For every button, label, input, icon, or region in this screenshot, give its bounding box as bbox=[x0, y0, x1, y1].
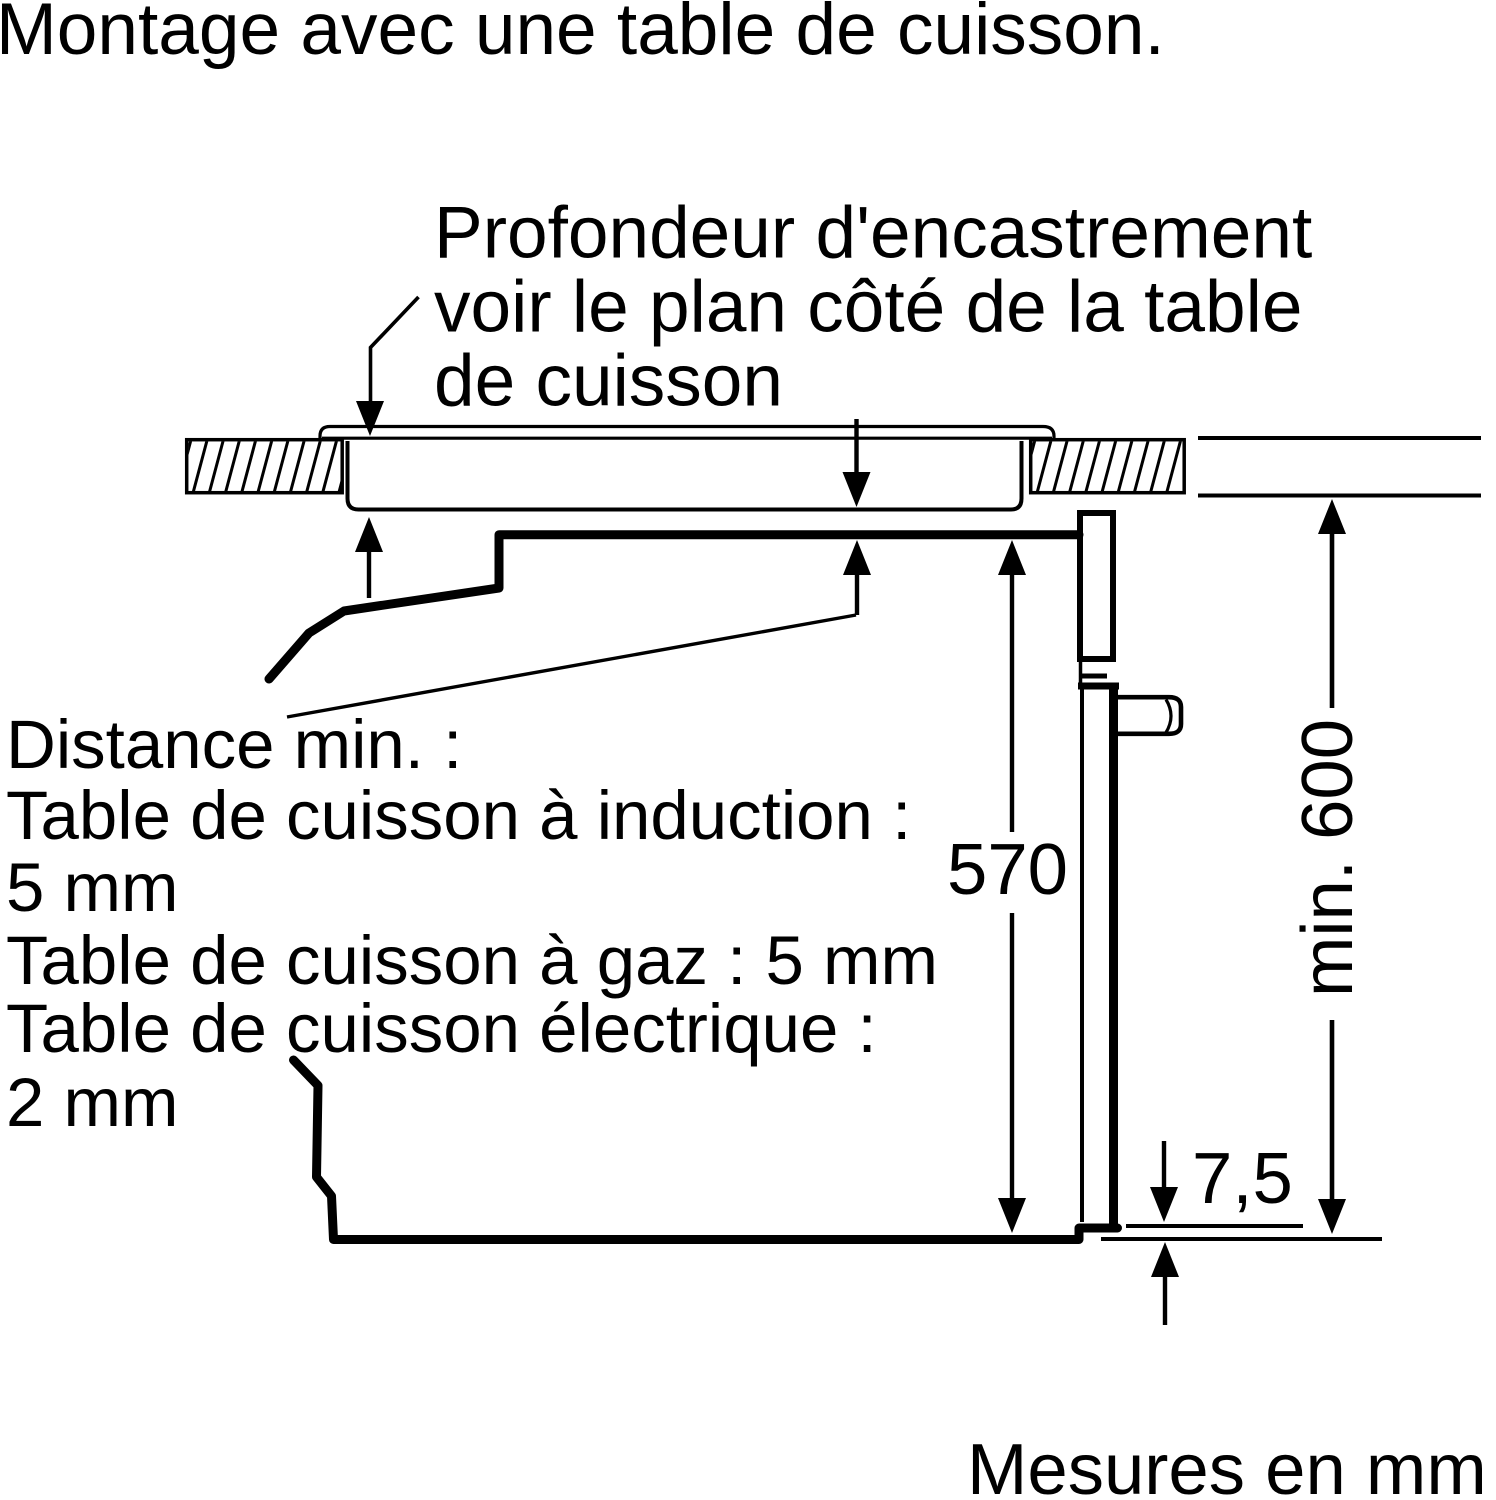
svg-text:2 mm: 2 mm bbox=[6, 1064, 179, 1141]
svg-text:Distance min. :: Distance min. : bbox=[6, 706, 462, 783]
svg-text:Profondeur d'encastrement: Profondeur d'encastrement bbox=[434, 193, 1312, 274]
svg-text:voir le plan côté de la table: voir le plan côté de la table bbox=[434, 267, 1302, 348]
svg-text:Table de cuisson à induction :: Table de cuisson à induction : bbox=[6, 777, 911, 854]
svg-text:5 mm: 5 mm bbox=[6, 849, 179, 926]
svg-text:Table de cuisson à gaz : 5 mm: Table de cuisson à gaz : 5 mm bbox=[6, 922, 938, 999]
svg-text:Montage avec une table de cuis: Montage avec une table de cuisson. bbox=[0, 0, 1165, 70]
svg-text:570: 570 bbox=[947, 829, 1068, 910]
svg-text:de cuisson: de cuisson bbox=[434, 341, 783, 422]
svg-text:7,5: 7,5 bbox=[1192, 1138, 1293, 1219]
svg-text:Mesures en mm: Mesures en mm bbox=[967, 1429, 1487, 1500]
svg-text:min. 600: min. 600 bbox=[1287, 719, 1368, 997]
svg-text:Table de cuisson électrique :: Table de cuisson électrique : bbox=[6, 990, 877, 1067]
